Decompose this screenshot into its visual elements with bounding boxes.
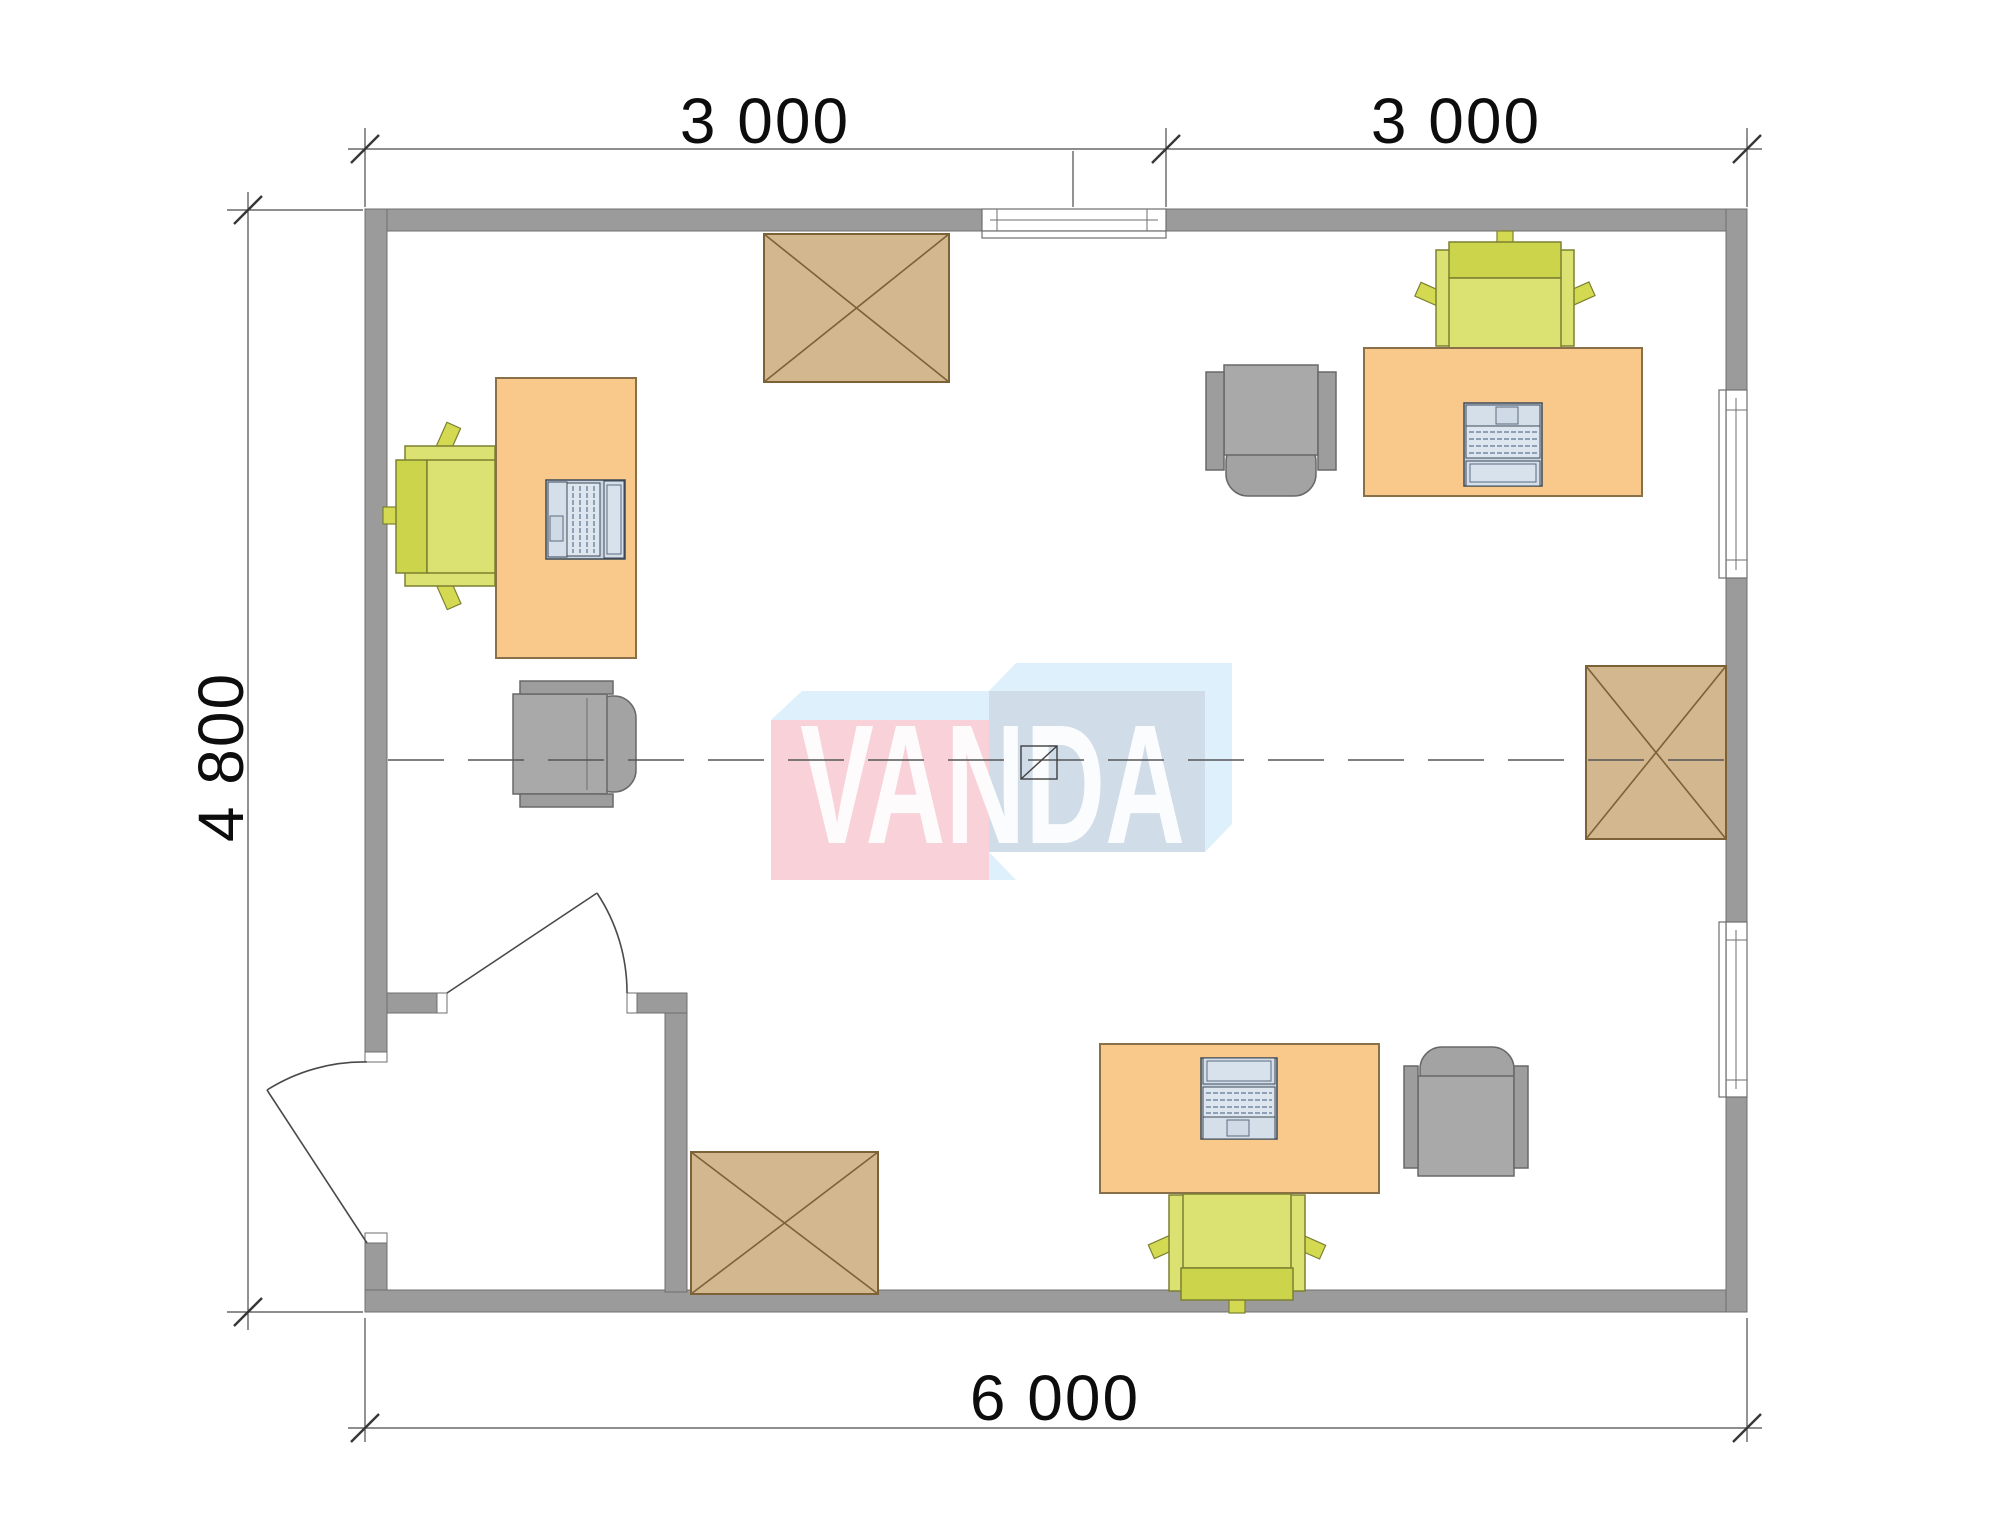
wall-right-lower: [1726, 1097, 1747, 1312]
task-chair: [383, 422, 495, 609]
crate-top: [764, 234, 949, 382]
armchair-body: [1224, 365, 1318, 455]
windows: [982, 209, 1747, 1097]
wall-top-left-segment: [365, 209, 982, 231]
crate-bottom: [691, 1152, 878, 1294]
door-jamb: [627, 993, 637, 1013]
floor-plan-drawing: 3 000 3 000 4 800 6 000: [0, 0, 2000, 1520]
dimension-label-bottom: 6 000: [970, 1362, 1140, 1434]
armchair-body: [1418, 1076, 1514, 1176]
door-leaf: [447, 893, 597, 993]
workstation-bottom: [1100, 1044, 1528, 1313]
entrance-door: [267, 1052, 387, 1243]
armchair-arm: [1514, 1066, 1528, 1168]
armchair: [1206, 365, 1336, 496]
doors: [267, 893, 637, 1243]
door-jamb: [365, 1052, 387, 1062]
laptop: [546, 480, 625, 559]
partition-wall-right-piece: [637, 993, 687, 1013]
armchair: [513, 681, 636, 807]
door-swing-arc: [267, 1062, 367, 1090]
armchair-arm: [1318, 372, 1336, 470]
headrest: [383, 507, 397, 524]
door-swing-arc: [597, 893, 627, 993]
laptop-screen: [607, 485, 621, 554]
window-right-lower: [1719, 922, 1747, 1097]
interior-door: [437, 893, 637, 1013]
window-top: [982, 209, 1166, 238]
dimension-label-top-right: 3 000: [1371, 85, 1541, 157]
workstation-left: [383, 378, 636, 807]
dimension-label-left: 4 800: [185, 672, 257, 842]
laptop: [1201, 1058, 1277, 1139]
armchair-arm: [520, 794, 613, 807]
window-right-upper: [1719, 390, 1747, 578]
laptop-touchpad: [1496, 407, 1518, 424]
workstation-top-right: [1206, 231, 1642, 496]
wall-top-right-segment: [1166, 209, 1747, 231]
wall-right-middle: [1726, 578, 1747, 922]
chair-seat: [1183, 1194, 1291, 1268]
chair-backrest: [396, 460, 427, 573]
armchair: [1404, 1047, 1528, 1176]
armchair-arm: [520, 681, 613, 694]
laptop-screen: [1207, 1061, 1271, 1081]
chair-backrest: [1449, 242, 1561, 278]
dimension-label-top-left: 3 000: [680, 85, 850, 157]
logo-box-top-face: [989, 663, 1232, 691]
door-leaf: [267, 1090, 367, 1243]
crate-right: [1586, 666, 1726, 839]
logo-wordmark: VANDA: [800, 690, 1185, 880]
chair-seat: [1449, 278, 1561, 348]
headrest: [1229, 1299, 1245, 1313]
floor-plan-canvas: 3 000 3 000 4 800 6 000: [0, 0, 2000, 1520]
laptop-keyboard: [567, 483, 600, 556]
wall-left: [365, 209, 387, 1052]
door-jamb: [437, 993, 447, 1013]
wall-bottom: [365, 1290, 1747, 1312]
armchair-arm: [1206, 372, 1224, 470]
door-jamb: [365, 1233, 387, 1243]
chair-seat: [427, 460, 495, 573]
armchair-arm: [1404, 1066, 1418, 1168]
partition-wall-vertical: [665, 1013, 687, 1292]
armchair-body: [513, 694, 607, 794]
watermark-logo: VANDA: [771, 663, 1232, 880]
laptop: [1464, 403, 1542, 486]
partition-wall-left-piece: [387, 993, 437, 1013]
chair-backrest: [1181, 1268, 1293, 1300]
chair-side-bar: [405, 446, 495, 461]
laptop-touchpad: [550, 516, 563, 541]
laptop-touchpad: [1227, 1120, 1249, 1136]
wall-right-upper: [1726, 209, 1747, 390]
logo-box-side-face: [1205, 663, 1232, 852]
task-chair: [1415, 231, 1595, 348]
laptop-screen: [1470, 464, 1536, 482]
